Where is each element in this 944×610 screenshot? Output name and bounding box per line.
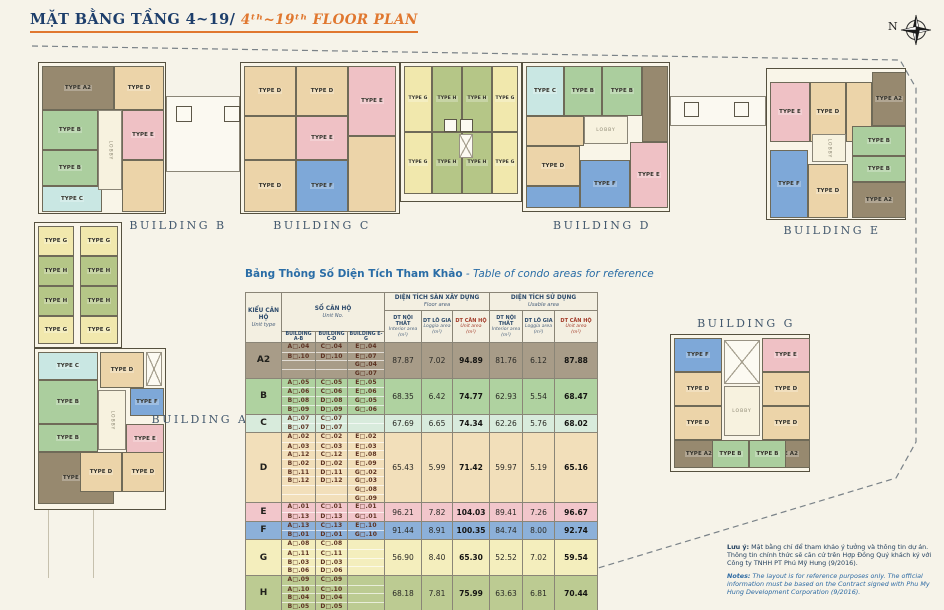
table-row-D: DA□.02A□.03A□.12B□.02B□.11B□.12 C□.02C□.… (246, 432, 598, 503)
unit-number (348, 549, 384, 558)
unit-numbers-eg: E□.10G□.10 (348, 521, 385, 539)
unit-type-label: TYPE G (87, 238, 112, 244)
unit-type-cell: E (246, 503, 282, 521)
unit-type-label: TYPE D (774, 386, 799, 392)
area-value: 62.93 (490, 378, 523, 414)
unit-block-type-g: TYPE G (80, 226, 118, 256)
unit-numbers-cd: C□.13D□.01 (316, 521, 348, 539)
area-value: 6.12 (523, 343, 555, 379)
north-compass: N (888, 8, 934, 52)
unit-number (348, 566, 384, 575)
unit-block-type-h: TYPE H (38, 286, 74, 316)
unit-number: E□.06 (348, 387, 384, 396)
unit-block-type-g: TYPE G (404, 66, 432, 132)
unit-number: C□.02 (316, 433, 347, 442)
unit-number (348, 576, 384, 585)
unit-number: E□.10 (348, 522, 384, 531)
table-title-vi: Bảng Thông Số Diện Tích Tham Khảo (245, 268, 463, 280)
unit-type-label: TYPE H (44, 268, 69, 274)
unit-block-type-b: TYPE B (42, 150, 98, 186)
table-title-en: - Table of condo areas for reference (463, 268, 654, 280)
unit-type-label: TYPE B (867, 138, 891, 144)
unit-numbers-ab: A□.09A□.10B□.04B□.05 (282, 575, 316, 610)
area-value: 92.74 (555, 521, 598, 539)
unit-number (316, 360, 347, 369)
unit-number: G□.10 (348, 530, 384, 539)
unit-numbers-ab: A□.02A□.03A□.12B□.02B□.11B□.12 (282, 432, 316, 503)
area-value: 68.35 (385, 378, 422, 414)
unit-number: C□.12 (316, 450, 347, 459)
core-column (444, 119, 457, 132)
table-row-H: HA□.09A□.10B□.04B□.05C□.09C□.10D□.04D□.0… (246, 575, 598, 610)
unit-type-label: TYPE D (816, 188, 841, 194)
unit-block-type-c: TYPE C (38, 352, 98, 380)
unit-type-label: TYPE B (718, 451, 742, 457)
unit-type-label: TYPE F (135, 399, 159, 405)
unit-number: C□.03 (316, 442, 347, 451)
lobby-label: LOBBY (826, 138, 831, 158)
unit-type-label: TYPE C (60, 196, 84, 202)
core-column (734, 102, 749, 117)
area-value: 89.41 (490, 503, 523, 521)
page-title: MẶT BẰNG TẦNG 4~19/ 4ᵗʰ~19ᵗʰ FLOOR PLAN (30, 9, 418, 33)
unit-type-label: TYPE G (44, 327, 69, 333)
unit-number: B□.07 (282, 423, 315, 432)
unit-numbers-eg: E□.05E□.06G□.05G□.06 (348, 378, 385, 414)
unit-number: E□.07 (348, 352, 384, 361)
lobby-label: LOBBY (107, 140, 112, 160)
table-row-G: GA□.08A□.11B□.03B□.06C□.08C□.11D□.03D□.0… (246, 540, 598, 576)
col-header-building-1: BUILDING C-D (316, 332, 348, 343)
unit-number: D□.10 (316, 352, 347, 361)
unit-block-type-d (244, 116, 296, 160)
unit-numbers-eg: E□.02E□.03E□.08E□.09G□.02G□.03G□.08G□.09 (348, 432, 385, 503)
unit-numbers-eg: E□.01G□.01 (348, 503, 385, 521)
unit-number (348, 585, 384, 594)
unit-block-type-f: TYPE F (770, 150, 808, 218)
unit-type-cell: H (246, 575, 282, 610)
area-value: 71.42 (453, 432, 490, 503)
unit-type-cell: F (246, 521, 282, 539)
unit-type-label: TYPE H (436, 160, 457, 166)
unit-block-type-b: TYPE B (38, 380, 98, 424)
unit-number: E□.03 (348, 442, 384, 451)
lobby-label: LOBBY (596, 128, 616, 133)
area-value: 5.19 (523, 432, 555, 503)
unit-type-label: TYPE B (56, 435, 80, 441)
col-header-usable-area: DIỆN TÍCH SỬ DỤNG Usable area (490, 293, 598, 311)
unit-type-label: TYPE B (867, 166, 891, 172)
unit-number: A□.08 (282, 540, 315, 549)
unit-numbers-ab: A□.01B□.13 (282, 503, 316, 521)
unit-number (348, 593, 384, 602)
building-label-g: BUILDING G (686, 317, 806, 330)
unit-type-cell: A2 (246, 343, 282, 379)
unit-block-type-b: TYPE B (852, 156, 906, 182)
unit-number: G□.03 (348, 476, 384, 485)
unit-type-header-en: Unit type (246, 322, 281, 328)
unit-number (316, 369, 347, 378)
unit-number: E□.08 (348, 450, 384, 459)
unit-type-label: TYPE D (127, 85, 152, 91)
unit-number: B□.05 (282, 602, 315, 610)
unit-number: D□.13 (316, 512, 347, 521)
unit-block-type-d (122, 160, 164, 212)
unit-block-type-d: TYPE D (114, 66, 164, 110)
unit-block-type-f (526, 186, 580, 208)
building-label-b: BUILDING B (118, 219, 238, 232)
unit-number: A□.10 (282, 585, 315, 594)
col-header-floor-0: DT NỘI THẤTInterior area(m²) (385, 311, 422, 343)
unit-block-type-b: TYPE B (749, 440, 786, 468)
unit-block-type-d (526, 116, 584, 146)
unit-number: B□.13 (282, 512, 315, 521)
area-value: 62.26 (490, 414, 523, 432)
usable-area-header-vi: DIỆN TÍCH SỬ DỤNG (490, 295, 597, 302)
unit-type-label: TYPE F (686, 352, 710, 358)
unit-block-type-a2: TYPE A2 (872, 72, 906, 126)
unit-numbers-eg: E□.04E□.07G□.04G□.07 (348, 343, 385, 379)
unit-number: G□.07 (348, 369, 384, 378)
unit-number: A□.01 (282, 503, 315, 512)
unit-number: B□.04 (282, 593, 315, 602)
unit-type-label: TYPE E (133, 436, 157, 442)
unit-number: E□.09 (348, 459, 384, 468)
condo-area-table: KIỂU CĂN HỘ Unit type SỐ CĂN HỘ Unit No.… (245, 292, 598, 610)
unit-block-type-f: TYPE F (130, 388, 164, 416)
unit-block-type-e: TYPE E (762, 338, 810, 372)
unit-number: G□.01 (348, 512, 384, 521)
unit-block-type-d: TYPE D (808, 164, 848, 218)
unit-number: A□.09 (282, 576, 315, 585)
table-row-E: EA□.01B□.13C□.01D□.13E□.01G□.0196.217.82… (246, 503, 598, 521)
unit-block-type-g: TYPE G (80, 316, 118, 344)
unit-block-type-d: TYPE D (122, 452, 164, 492)
unit-block-type-g: TYPE G (38, 226, 74, 256)
unit-number: D□.12 (316, 476, 347, 485)
unit-type-label: TYPE D (110, 367, 135, 373)
notes-block: Lưu ý: Mặt bằng chỉ để tham khảo ý tưởng… (727, 543, 939, 596)
unit-number: D□.06 (316, 566, 347, 575)
unit-number: C□.08 (316, 540, 347, 549)
site-path-line (48, 510, 49, 578)
unit-type-cell: B (246, 378, 282, 414)
unit-block-type-f: TYPE F (580, 160, 630, 208)
unit-type-label: TYPE B (610, 88, 634, 94)
area-value: 6.42 (422, 378, 453, 414)
area-value: 68.18 (385, 575, 422, 610)
unit-number: A□.02 (282, 433, 315, 442)
core-column (224, 106, 240, 122)
unit-number: G□.04 (348, 360, 384, 369)
unit-block-type-b: TYPE B (564, 66, 602, 116)
area-value: 87.87 (385, 343, 422, 379)
unit-type-label: TYPE D (131, 469, 156, 475)
unit-block-type-g: TYPE G (38, 316, 74, 344)
unit-number: C□.06 (316, 387, 347, 396)
unit-block-type-d: TYPE D (674, 406, 722, 440)
floor-area-header-en: Floor area (385, 302, 489, 308)
core-column (684, 102, 699, 117)
unit-block-type-h: TYPE H (80, 256, 118, 286)
area-value: 68.47 (555, 378, 598, 414)
col-header-unit-type: KIỂU CĂN HỘ Unit type (246, 293, 282, 343)
unit-number: D□.02 (316, 459, 347, 468)
unit-type-label: TYPE A2 (685, 451, 713, 457)
core-column (176, 106, 192, 122)
unit-type-label: TYPE E (310, 135, 334, 141)
unit-number (348, 415, 384, 424)
unit-number: C□.10 (316, 585, 347, 594)
unit-number: A□.06 (282, 387, 315, 396)
unit-number: E□.04 (348, 343, 384, 352)
unit-type-label: TYPE E (360, 98, 384, 104)
area-value: 6.81 (523, 575, 555, 610)
void-shaft (724, 340, 760, 384)
unit-block-type-h: TYPE H (432, 132, 462, 194)
unit-type-label: TYPE G (495, 160, 516, 166)
area-value: 5.54 (523, 378, 555, 414)
lobby-area: LOBBY (98, 110, 122, 190)
unit-number: D□.11 (316, 468, 347, 477)
unit-type-label: TYPE C (56, 363, 80, 369)
col-header-unit-no: SỐ CĂN HỘ Unit No. (282, 293, 385, 332)
unit-type-label: TYPE B (755, 451, 779, 457)
unit-number: C□.07 (316, 415, 347, 424)
unit-number: E□.05 (348, 379, 384, 388)
unit-type-label: TYPE H (44, 298, 69, 304)
unit-number (348, 540, 384, 549)
unit-block-type-f: TYPE F (296, 160, 348, 212)
area-value: 96.67 (555, 503, 598, 521)
area-value: 84.74 (490, 521, 523, 539)
unit-type-label: TYPE F (593, 181, 617, 187)
unit-type-label: TYPE E (637, 172, 661, 178)
unit-number (348, 602, 384, 610)
unit-number: D□.08 (316, 396, 347, 405)
unit-type-label: TYPE A2 (875, 96, 903, 102)
unit-block-type-g: TYPE G (404, 132, 432, 194)
unit-number: C□.11 (316, 549, 347, 558)
col-header-floor-2: DT CĂN HỘUnit area(m²) (453, 311, 490, 343)
area-value: 65.30 (453, 540, 490, 576)
unit-number: G□.06 (348, 405, 384, 414)
unit-block-type-a2: TYPE A2 (852, 182, 906, 218)
notes-vi: Lưu ý: Mặt bằng chỉ để tham khảo ý tưởng… (727, 543, 939, 567)
notes-en-label: Notes: (727, 572, 751, 580)
col-header-floor-area: DIỆN TÍCH SÀN XÂY DỰNG Floor area (385, 293, 490, 311)
lobby-area: LOBBY (812, 134, 846, 162)
unit-number: C□.04 (316, 343, 347, 352)
notes-en-text: The layout is for reference purposes onl… (727, 572, 930, 596)
unit-block-type-d: TYPE D (244, 160, 296, 212)
col-header-usable-1: DT LÔ GIALoggia area(m²) (523, 311, 555, 343)
unit-block-type-a2 (642, 66, 668, 142)
table-row-F: FA□.13B□.01C□.13D□.01E□.10G□.1091.448.91… (246, 521, 598, 539)
unit-number: D□.04 (316, 593, 347, 602)
unit-block-type-h: TYPE H (80, 286, 118, 316)
unit-number: A□.11 (282, 549, 315, 558)
unit-number: D□.09 (316, 405, 347, 414)
unit-number: C□.01 (316, 503, 347, 512)
area-value: 96.21 (385, 503, 422, 521)
area-value: 91.44 (385, 521, 422, 539)
notes-vi-label: Lưu ý: (727, 543, 749, 551)
unit-type-label: TYPE G (44, 238, 69, 244)
area-value: 74.77 (453, 378, 490, 414)
building-label-a: BUILDING A (140, 413, 260, 426)
unit-block-type-d: TYPE D (244, 66, 296, 116)
unit-number (316, 494, 347, 503)
lobby-label: LOBBY (732, 409, 752, 414)
unit-number: B□.01 (282, 530, 315, 539)
unit-numbers-ab: A□.07B□.07 (282, 414, 316, 432)
unit-block-type-d: TYPE D (762, 372, 810, 406)
building-label-e: BUILDING E (772, 224, 892, 237)
unit-number: E□.01 (348, 503, 384, 512)
unit-block-type-d: TYPE D (100, 352, 144, 388)
area-value: 5.76 (523, 414, 555, 432)
col-header-floor-1: DT LÔ GIALoggia area(m²) (422, 311, 453, 343)
floor-plan-page: MẶT BẰNG TẦNG 4~19/ 4ᵗʰ~19ᵗʰ FLOOR PLAN … (0, 0, 944, 610)
unit-type-label: TYPE B (56, 399, 80, 405)
unit-number: G□.02 (348, 468, 384, 477)
area-value: 59.54 (555, 540, 598, 576)
void-shaft (459, 134, 473, 158)
unit-numbers-cd: C□.08C□.11D□.03D□.06 (316, 540, 348, 576)
col-header-building-2: BUILDING E-G (348, 332, 385, 343)
unit-type-cell: D (246, 432, 282, 503)
unit-number: A□.07 (282, 415, 315, 424)
unit-block-type-e: TYPE E (770, 82, 810, 142)
unit-block-type-b: TYPE B (42, 110, 98, 150)
unit-block-type-c: TYPE C (42, 186, 102, 212)
unit-block-type-c: TYPE C (526, 66, 564, 116)
unit-block-type-e: TYPE E (126, 424, 164, 454)
unit-type-label: TYPE D (258, 88, 283, 94)
unit-type-label: TYPE D (89, 469, 114, 475)
unit-block-type-e: TYPE E (122, 110, 164, 160)
area-value: 7.82 (422, 503, 453, 521)
lobby-label: LOBBY (109, 410, 114, 430)
unit-numbers-cd: C□.02C□.03C□.12D□.02D□.11D□.12 (316, 432, 348, 503)
table-row-B: BA□.05A□.06B□.08B□.09C□.05C□.06D□.08D□.0… (246, 378, 598, 414)
unit-number: C□.13 (316, 522, 347, 531)
unit-number: B□.09 (282, 405, 315, 414)
core-column (460, 119, 473, 132)
unit-type-label: TYPE H (436, 96, 457, 102)
lobby-area: LOBBY (98, 390, 126, 450)
unit-numbers-ab: A□.04B□.10 (282, 343, 316, 379)
unit-block-type-e: TYPE E (348, 66, 396, 136)
unit-block-type-e: TYPE E (296, 116, 348, 160)
area-value: 81.76 (490, 343, 523, 379)
unit-type-label: TYPE H (466, 96, 487, 102)
unit-type-label: TYPE F (310, 183, 334, 189)
site-path-line (93, 510, 94, 578)
unit-no-header-en: Unit No. (282, 313, 384, 319)
area-value: 75.99 (453, 575, 490, 610)
unit-type-label: TYPE D (774, 420, 799, 426)
unit-number: C□.09 (316, 576, 347, 585)
building-label-d: BUILDING D (542, 219, 662, 232)
unit-number: G□.09 (348, 494, 384, 503)
area-value: 87.88 (555, 343, 598, 379)
unit-number (316, 485, 347, 494)
col-header-usable-0: DT NỘI THẤTInterior area(m²) (490, 311, 523, 343)
unit-number: B□.03 (282, 558, 315, 567)
unit-block-type-d: TYPE D (810, 82, 846, 142)
unit-numbers-eg (348, 540, 385, 576)
unit-type-label: TYPE D (686, 420, 711, 426)
unit-type-label: TYPE H (466, 160, 487, 166)
unit-number (282, 485, 315, 494)
unit-type-label: TYPE F (777, 181, 801, 187)
usable-area-header-en: Usable area (490, 302, 597, 308)
unit-block-type-a2: TYPE A2 (42, 66, 114, 110)
unit-numbers-cd: C□.04D□.10 (316, 343, 348, 379)
unit-type-label: TYPE C (533, 88, 557, 94)
unit-numbers-cd: C□.01D□.13 (316, 503, 348, 521)
unit-numbers-ab: A□.13B□.01 (282, 521, 316, 539)
unit-number: A□.13 (282, 522, 315, 531)
lobby-area: LOBBY (584, 116, 628, 144)
area-value: 100.35 (453, 521, 490, 539)
unit-block-type-d: TYPE D (80, 452, 122, 492)
unit-type-label: TYPE G (87, 327, 112, 333)
unit-number: G□.05 (348, 396, 384, 405)
area-value: 74.34 (453, 414, 490, 432)
unit-type-label: TYPE E (778, 109, 802, 115)
unit-no-header-vi: SỐ CĂN HỘ (282, 306, 384, 313)
unit-number: A□.03 (282, 442, 315, 451)
unit-type-label: TYPE G (408, 160, 429, 166)
area-value: 104.03 (453, 503, 490, 521)
unit-type-label: TYPE G (495, 96, 516, 102)
floor-area-header-vi: DIỆN TÍCH SÀN XÂY DỰNG (385, 295, 489, 302)
notes-en: Notes: The layout is for reference purpo… (727, 572, 939, 596)
area-value: 7.26 (523, 503, 555, 521)
unit-number: B□.10 (282, 352, 315, 361)
area-value: 68.02 (555, 414, 598, 432)
unit-type-label: TYPE H (87, 298, 112, 304)
area-value: 59.97 (490, 432, 523, 503)
unit-number: D□.01 (316, 530, 347, 539)
unit-numbers-cd: C□.09C□.10D□.04D□.05 (316, 575, 348, 610)
unit-number: G□.08 (348, 485, 384, 494)
unit-type-label: TYPE D (258, 183, 283, 189)
unit-block-type-d: TYPE D (762, 406, 810, 440)
unit-number: A□.05 (282, 379, 315, 388)
unit-number: E□.02 (348, 433, 384, 442)
area-value: 65.43 (385, 432, 422, 503)
unit-block-type-h: TYPE H (38, 256, 74, 286)
unit-type-label: TYPE D (541, 163, 566, 169)
void-shaft (146, 352, 162, 386)
unit-number: B□.02 (282, 459, 315, 468)
unit-type-label: TYPE B (571, 88, 595, 94)
unit-number: B□.08 (282, 396, 315, 405)
unit-number: C□.05 (316, 379, 347, 388)
unit-number: D□.05 (316, 602, 347, 610)
area-value: 8.91 (422, 521, 453, 539)
unit-type-cell: G (246, 540, 282, 576)
area-value: 8.00 (523, 521, 555, 539)
unit-block-type-d: TYPE D (296, 66, 348, 116)
area-value: 70.44 (555, 575, 598, 610)
unit-block-type-b: TYPE B (712, 440, 749, 468)
table-title: Bảng Thông Số Diện Tích Tham Khảo - Tabl… (245, 268, 654, 280)
